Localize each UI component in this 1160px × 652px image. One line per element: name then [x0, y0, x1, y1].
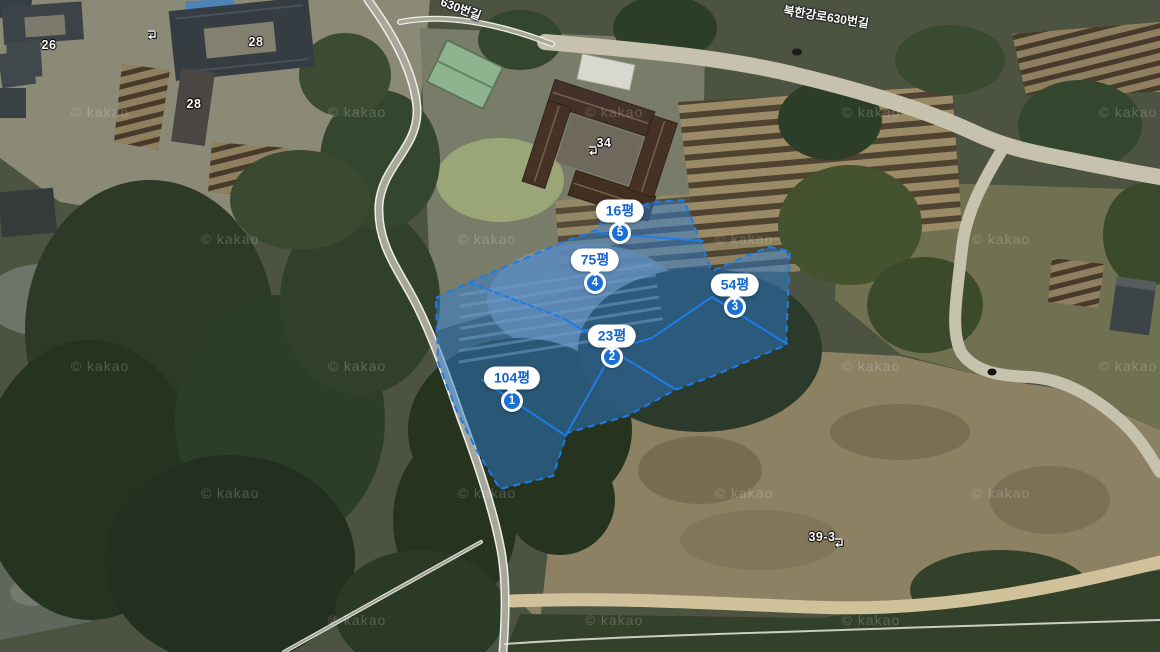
entrance-marker-icon	[832, 538, 844, 550]
parcel-area-label-4[interactable]: 75평	[571, 249, 619, 272]
satellite-map[interactable]: © kakao© kakao© kakao© kakao© kakao© kak…	[0, 0, 1160, 652]
parcel-area-text: 75평	[581, 252, 609, 268]
parcel-area-text: 104평	[494, 370, 530, 386]
parcel-area-label-3[interactable]: 54평	[711, 274, 759, 297]
parcel-area-text: 16평	[606, 203, 634, 219]
parcel-area-label-1[interactable]: 104평	[484, 367, 540, 390]
road-name-label: 북한강로630번길	[782, 1, 870, 31]
lot-number-26: 26	[42, 38, 57, 52]
road-name-label: 630번길	[438, 0, 483, 24]
parcel-area-label-5[interactable]: 16평	[596, 200, 644, 223]
entrance-marker-icon	[145, 30, 157, 42]
entrance-marker-icon	[586, 146, 598, 158]
parcel-area-label-2[interactable]: 23평	[588, 325, 636, 348]
lot-number-28b: 28	[187, 97, 202, 111]
parcel-area-text: 23평	[598, 328, 626, 344]
lot-number-28: 28	[249, 35, 264, 49]
annotation-layer: 26 28 28 34 39-3 630번길 북한강로630번길	[0, 0, 1160, 652]
lot-number-34: 34	[597, 136, 612, 150]
parcel-area-text: 54평	[721, 277, 749, 293]
